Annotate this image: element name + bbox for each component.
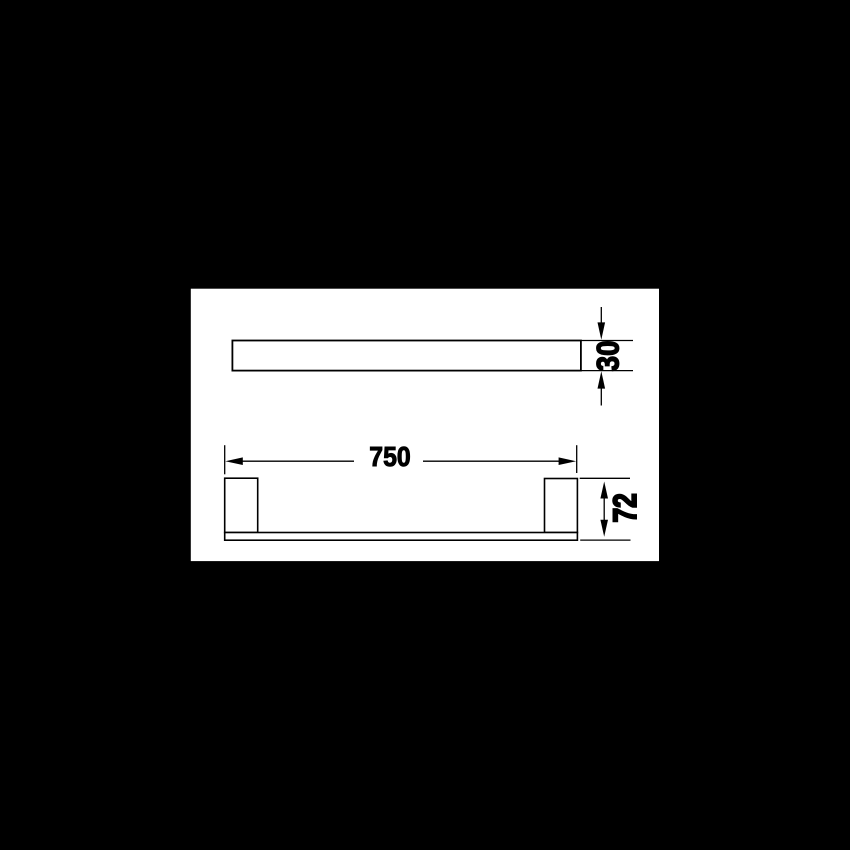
svg-text:30: 30 <box>589 341 625 372</box>
svg-text:72: 72 <box>607 493 643 522</box>
svg-text:750: 750 <box>369 441 410 472</box>
